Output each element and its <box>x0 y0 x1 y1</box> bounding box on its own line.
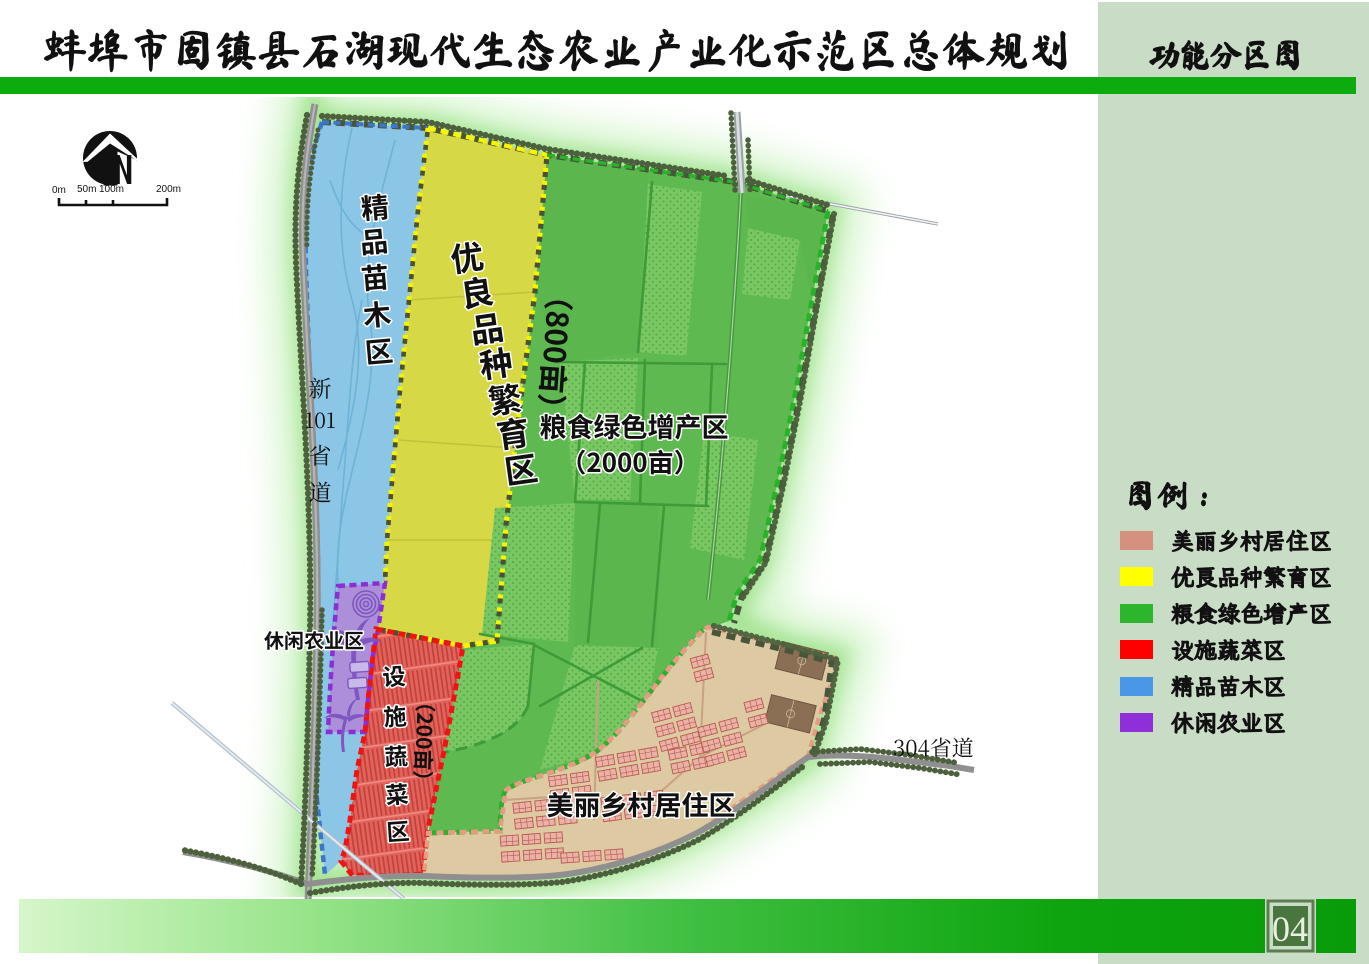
svg-text:200m: 200m <box>156 184 181 195</box>
svg-text:04: 04 <box>1272 909 1308 949</box>
svg-text:50m: 50m <box>77 184 96 195</box>
svg-text:0m: 0m <box>52 185 66 196</box>
svg-text:100m: 100m <box>99 184 124 195</box>
